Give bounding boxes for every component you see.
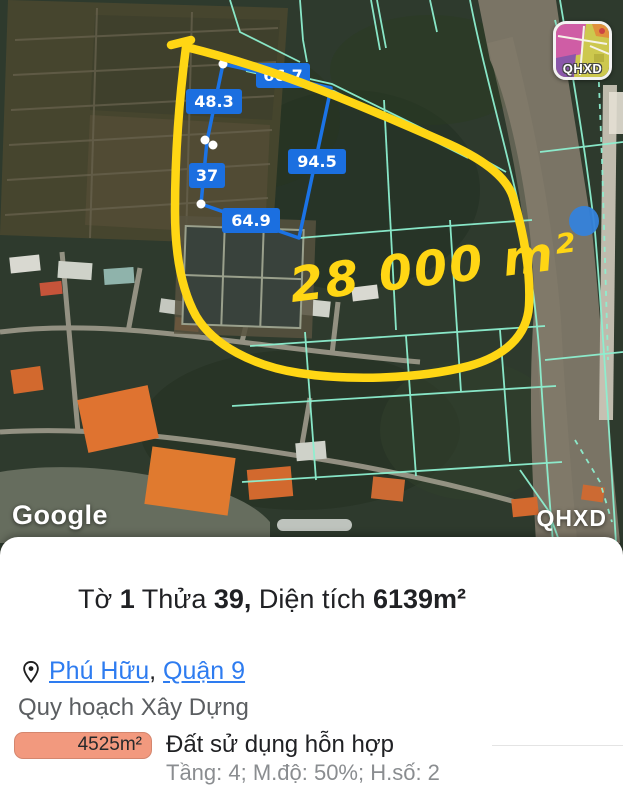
legend-row-mixed-use: 4525m² Đất sử dụng hỗn hợp bbox=[14, 731, 607, 759]
app-window: 66.7 28 000 m² 48.3 37 bbox=[0, 0, 623, 785]
parcel-title: Tờ 1 Thửa 39, Diện tích 6139m² bbox=[18, 548, 607, 650]
qhxd-overlay-label: QHXD bbox=[537, 505, 607, 532]
planning-section-heading: Quy hoạch Xây Dựng bbox=[18, 694, 607, 722]
sheet-number: 1 bbox=[120, 584, 135, 614]
svg-text:37: 37 bbox=[196, 166, 218, 185]
location-separator: , bbox=[149, 657, 163, 685]
sheet-drag-handle[interactable] bbox=[277, 519, 352, 531]
svg-text:94.5: 94.5 bbox=[297, 152, 336, 171]
link-district[interactable]: Quận 9 bbox=[163, 657, 245, 685]
google-watermark: Google bbox=[12, 500, 108, 531]
parcel-info-sheet: Tờ 1 Thửa 39, Diện tích 6139m² Phú Hữu, … bbox=[0, 537, 623, 785]
measure-label-37: 37 bbox=[189, 163, 225, 188]
map-view[interactable]: 66.7 28 000 m² 48.3 37 bbox=[0, 0, 623, 543]
measure-label-64-9: 64.9 bbox=[222, 208, 280, 233]
legend-label-mixed-use: Đất sử dụng hỗn hợp bbox=[166, 731, 394, 759]
parcel-number: 39, bbox=[214, 584, 252, 614]
location-row: Phú Hữu, Quận 9 bbox=[20, 656, 607, 687]
area-badge-mixed-use: 4525m² bbox=[14, 732, 152, 759]
title-word: Thửa bbox=[135, 584, 214, 614]
measure-label-94-5: 94.5 bbox=[288, 149, 346, 174]
svg-text:64.9: 64.9 bbox=[231, 211, 270, 230]
location-pin-icon bbox=[20, 659, 42, 685]
parcel-area: 6139m² bbox=[373, 584, 466, 614]
satellite-map-canvas[interactable]: 66.7 28 000 m² 48.3 37 bbox=[0, 0, 623, 543]
qhxd-thumbnail-label: QHXD bbox=[556, 61, 609, 76]
planning-parameters: Tầng: 4; M.độ: 50%; H.số: 2 bbox=[166, 761, 607, 785]
row-divider bbox=[492, 745, 623, 746]
link-ward[interactable]: Phú Hữu bbox=[49, 657, 149, 685]
svg-text:48.3: 48.3 bbox=[194, 92, 233, 111]
location-dot[interactable] bbox=[569, 206, 599, 236]
title-word: Diện tích bbox=[251, 584, 373, 614]
title-word: Tờ bbox=[78, 584, 120, 614]
measure-label-48-3: 48.3 bbox=[186, 89, 242, 114]
qhxd-layer-button[interactable]: QHXD bbox=[553, 21, 612, 80]
